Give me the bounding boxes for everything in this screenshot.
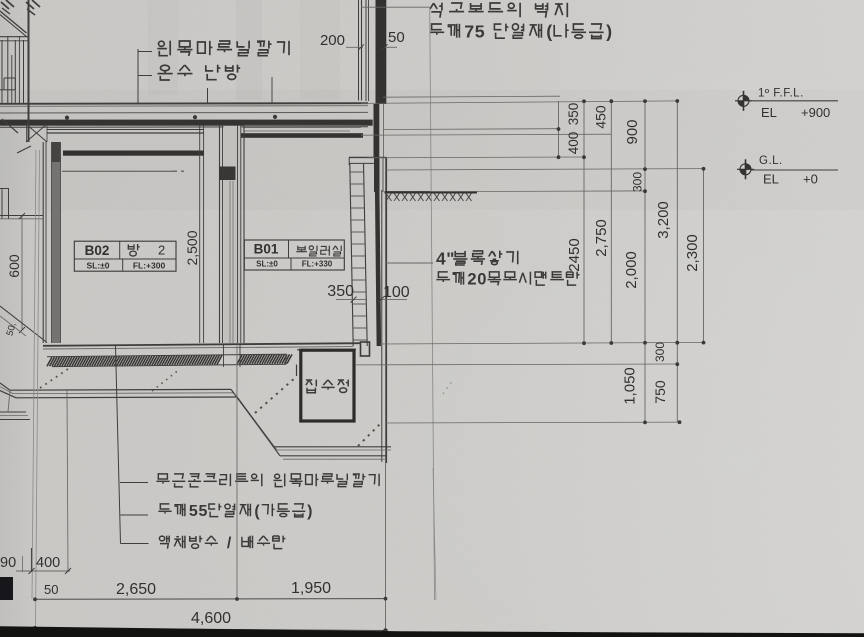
- svg-text:SL:±0: SL:±0: [256, 260, 278, 269]
- svg-text:B02: B02: [85, 243, 110, 258]
- svg-text:50: 50: [388, 29, 405, 46]
- svg-text:350: 350: [566, 103, 581, 126]
- svg-text:4,600: 4,600: [191, 610, 231, 627]
- svg-text:900: 900: [624, 119, 641, 144]
- svg-text:400: 400: [566, 132, 581, 155]
- svg-text:3,200: 3,200: [655, 201, 672, 239]
- svg-text:400: 400: [36, 555, 60, 571]
- svg-text:+900: +900: [801, 105, 830, 120]
- svg-text:/: /: [227, 535, 232, 552]
- svg-text:SL:±0: SL:±0: [86, 261, 109, 271]
- svg-text:): ): [606, 22, 612, 42]
- svg-text:2: 2: [467, 270, 476, 289]
- svg-text:450: 450: [593, 105, 609, 129]
- svg-text:(: (: [254, 503, 260, 520]
- svg-text:300: 300: [631, 172, 645, 192]
- svg-text:5: 5: [199, 503, 208, 520]
- svg-text:2450: 2450: [566, 238, 583, 271]
- svg-text:EL: EL: [761, 105, 777, 120]
- svg-text:100: 100: [383, 284, 410, 301]
- svg-text:350: 350: [327, 283, 354, 300]
- svg-text:B01: B01: [254, 242, 279, 257]
- svg-text:5: 5: [189, 503, 198, 520]
- svg-text:): ): [307, 503, 312, 520]
- svg-text:2,650: 2,650: [116, 581, 156, 598]
- svg-text:(: (: [546, 22, 552, 42]
- svg-text:50: 50: [44, 582, 58, 597]
- svg-text:2,750: 2,750: [593, 219, 610, 257]
- svg-text:G.L.: G.L.: [759, 155, 783, 167]
- svg-text:750: 750: [652, 380, 668, 404]
- svg-text:7: 7: [464, 22, 474, 42]
- svg-text:90: 90: [0, 555, 16, 571]
- svg-text:300: 300: [653, 342, 667, 362]
- svg-text:2: 2: [158, 243, 165, 258]
- svg-text:600: 600: [6, 254, 22, 278]
- svg-text:1,050: 1,050: [622, 367, 639, 405]
- svg-text:FL:+300: FL:+300: [133, 261, 166, 271]
- svg-text:200: 200: [320, 32, 345, 49]
- svg-text:5: 5: [475, 22, 485, 42]
- svg-text:FL:+330: FL:+330: [302, 260, 333, 269]
- svg-text:2,500: 2,500: [184, 230, 200, 265]
- svg-text:+0: +0: [803, 172, 818, 187]
- svg-text:0: 0: [477, 270, 486, 289]
- svg-text:1º F.F.L.: 1º F.F.L.: [758, 88, 804, 100]
- svg-text:2,000: 2,000: [623, 251, 640, 289]
- svg-text:1,950: 1,950: [291, 580, 331, 597]
- svg-text:EL: EL: [763, 172, 779, 187]
- svg-text:4: 4: [436, 248, 446, 268]
- svg-text:": ": [446, 248, 454, 268]
- svg-text:2,300: 2,300: [684, 234, 701, 272]
